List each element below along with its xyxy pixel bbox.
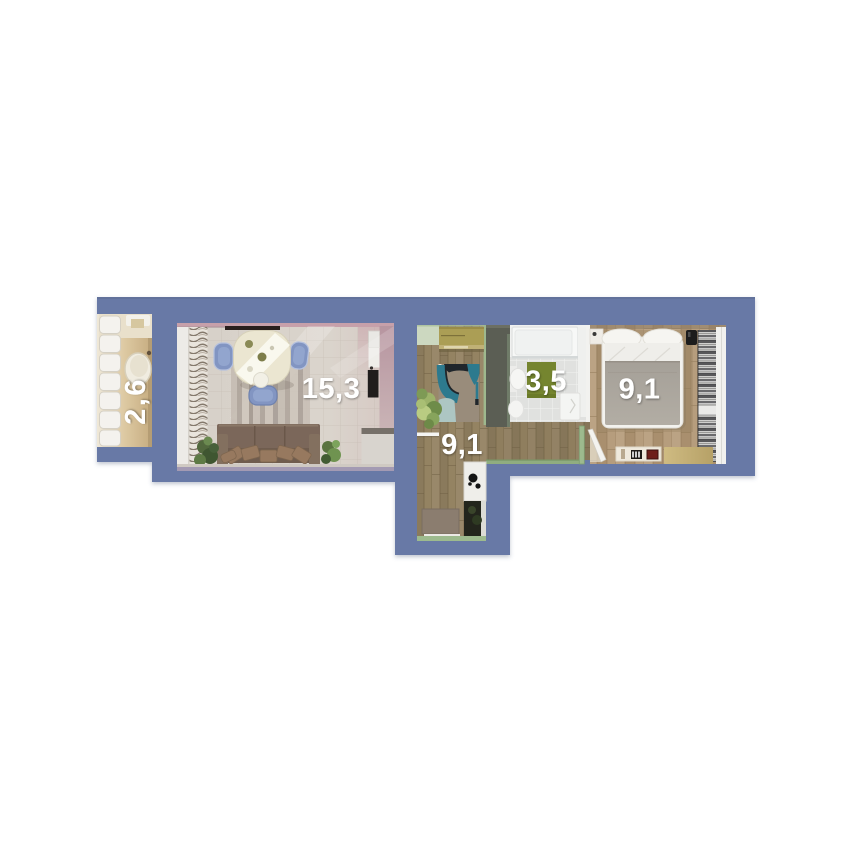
svg-text:9,1: 9,1 <box>441 429 483 461</box>
svg-text:9,1: 9,1 <box>619 374 661 406</box>
svg-text:3,5: 3,5 <box>525 366 567 398</box>
svg-text:2,6: 2,6 <box>120 377 152 425</box>
svg-text:15,3: 15,3 <box>302 373 360 405</box>
